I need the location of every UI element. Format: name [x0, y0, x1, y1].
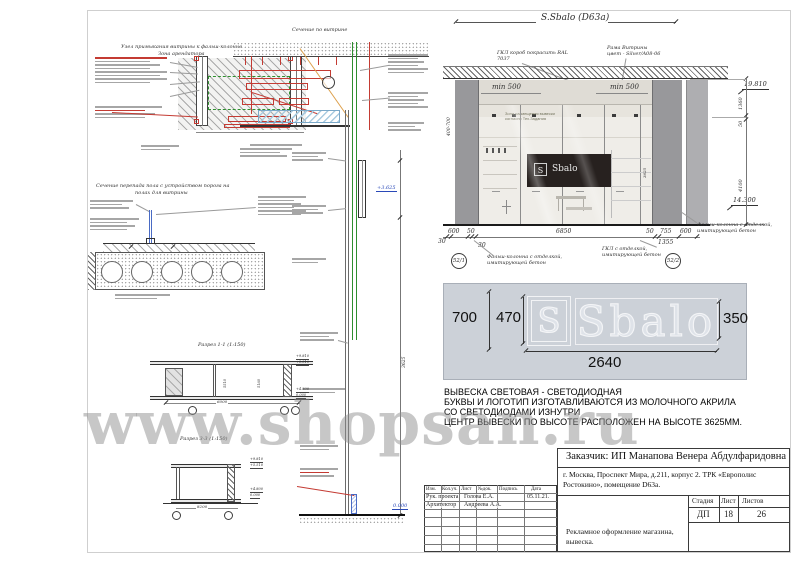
level-mark: +9.810 — [250, 458, 263, 463]
annotation-lines — [292, 258, 328, 265]
label-false-column-left-2: имитирующей бетон — [487, 261, 546, 266]
annotation-lines — [90, 200, 135, 211]
column-section — [227, 464, 235, 502]
ground-line — [163, 503, 258, 504]
titleblock-hline — [424, 535, 557, 536]
titleblock-vline — [524, 485, 525, 552]
label-false-column-right-2: имитирующей бетон — [697, 229, 756, 234]
level-mark: +5.510 — [296, 361, 309, 366]
column-line — [179, 467, 180, 499]
annotation-lines — [115, 294, 173, 301]
floor-line — [299, 514, 405, 516]
row1-role: Рук. проекта — [426, 494, 458, 500]
tiny-dim-mark — [532, 191, 540, 192]
anchor-red — [280, 57, 281, 65]
slab-void — [191, 261, 213, 283]
dim-1360: 1360 — [739, 97, 744, 110]
purpose-line-1: Рекламное оформление магазина, — [566, 528, 674, 536]
slab-void — [161, 261, 183, 283]
purpose-line-2: вывеска. — [566, 538, 594, 546]
dim-470: 470 — [496, 310, 521, 325]
note-gkl-2: 7037 — [497, 57, 510, 62]
annotation-lines — [95, 57, 171, 85]
note-frame-2: цвет - Silver/A08-06 — [607, 52, 660, 57]
title-dim-line — [456, 22, 536, 23]
sign-height-dim: 3625 — [643, 168, 647, 178]
address-line-1: г. Москва, Проспект Мира, д.211, корпус … — [563, 471, 756, 479]
dim-1355: 1355 — [658, 240, 673, 246]
stage-header: Стадия — [692, 498, 713, 505]
row1-name: Голова Е.А. — [464, 494, 494, 500]
col-ndok: №док. — [478, 487, 492, 492]
anchor-symbol — [194, 119, 199, 124]
sheet-header: Лист — [721, 498, 736, 505]
annotation-lines — [303, 388, 347, 395]
logo-s-letter: S — [537, 301, 560, 341]
tiny-dim-mark — [576, 191, 584, 192]
callout-52-2: 52/2 — [665, 253, 681, 269]
dim-600-right: 600 — [680, 229, 691, 235]
titleblock-hline — [424, 544, 557, 545]
dim-line-470 — [523, 297, 524, 344]
label-gkl-beton-2: имитирующей бетон — [602, 253, 661, 258]
glass-reflection — [479, 105, 652, 225]
dim-chain-bottom — [443, 237, 700, 238]
steel-frame — [242, 98, 274, 105]
dim-chain — [400, 150, 401, 516]
elevation-title: S.Sbalo (D63a) — [541, 14, 609, 23]
min-dim-left: min 500 — [492, 84, 521, 91]
slab-void — [221, 261, 243, 283]
titleblock-vline — [459, 485, 460, 552]
tiny-dim-mark — [616, 191, 624, 192]
tiny-dim-mark — [492, 191, 500, 192]
annotation-lines — [292, 152, 328, 163]
detail-marker-circle — [322, 76, 335, 89]
titleblock-vline — [688, 495, 689, 552]
col-list: Лист — [461, 487, 471, 492]
floor-detail-subtitle: полах для витрины — [135, 191, 188, 196]
min-dim-line — [596, 93, 648, 94]
false-column-left — [455, 80, 479, 225]
floor-hatch — [299, 517, 405, 525]
glass-line — [348, 110, 349, 514]
slab-void — [101, 261, 123, 283]
titleblock-hline — [424, 526, 557, 527]
dim-4100: 4100 — [739, 179, 744, 192]
dim-line-2640 — [526, 351, 717, 352]
titleblock-hline — [424, 517, 557, 518]
mullion — [215, 364, 216, 397]
steel-frame — [279, 98, 309, 105]
floor-level: 0.000 — [392, 504, 408, 510]
min-dim-line — [481, 93, 541, 94]
dim-600-left: 600 — [448, 229, 459, 235]
dim-vertical: 5160 — [258, 379, 262, 388]
dim-chain-right — [746, 79, 747, 226]
column-line — [176, 467, 177, 499]
annotation-lines — [300, 332, 340, 343]
sign-profile-line — [362, 160, 363, 218]
row2-role: Архитектор — [426, 502, 456, 508]
anchor-red — [336, 57, 337, 65]
floor-line — [443, 224, 710, 226]
titleblock-line — [557, 467, 790, 468]
level-mark: 0.000 — [296, 394, 306, 399]
grid-marker — [224, 511, 233, 520]
mullion — [213, 364, 214, 397]
row1-date: 05.11.21. — [527, 494, 549, 500]
grid-marker — [291, 406, 300, 415]
col-izm: Изм. — [426, 487, 436, 492]
grid-marker — [280, 406, 289, 415]
dim-width: 8200 — [196, 505, 208, 509]
ext-line — [712, 117, 746, 118]
dim-line-700 — [489, 292, 490, 350]
level-mark: +4.800 — [296, 388, 309, 393]
column-section — [283, 364, 292, 397]
titleblock-line — [688, 507, 790, 508]
ext-line — [690, 79, 746, 80]
stud-line-green — [356, 42, 357, 340]
dim-30-a: 30 — [438, 239, 446, 245]
col-podpis: Подпись — [499, 487, 517, 492]
glass-line — [345, 110, 346, 514]
column-section — [165, 368, 183, 396]
sign-center-level: +3.625 — [376, 186, 397, 192]
min-dim-right: min 500 — [610, 84, 639, 91]
annotation-lines — [388, 92, 430, 110]
dim-line-350 — [719, 302, 720, 339]
annotation-lines — [388, 54, 430, 75]
row2-name: Андреева А.А. — [464, 502, 502, 508]
screed-hatch — [103, 244, 255, 252]
dim-width: 6000 — [216, 400, 228, 404]
customer: Заказчик: ИП Манапова Венера Абдулфаридо… — [566, 452, 786, 463]
dim-700: 700 — [452, 310, 477, 325]
title-dim-line — [608, 22, 676, 23]
dim-line — [196, 132, 304, 133]
callout-52-1: 52/1 — [451, 253, 467, 269]
logo-text-box: Sbalo — [575, 298, 718, 345]
ceiling-slab-hatch — [443, 66, 728, 79]
sheet-value: 18 — [724, 510, 733, 519]
grid-marker — [172, 511, 181, 520]
dim-755: 755 — [660, 229, 671, 235]
sheets-value: 26 — [757, 510, 766, 519]
logo-text: Sbalo — [577, 297, 716, 346]
level-mark: 0.000 — [250, 494, 260, 499]
col-data: Дата — [531, 487, 541, 492]
titleblock-line — [557, 495, 790, 496]
section-title: Сечение по витрине — [292, 28, 347, 33]
anchor-red — [300, 57, 301, 65]
titleblock-vline — [497, 485, 498, 552]
range-dim: 400-700 — [448, 117, 453, 136]
desc-line-2: БУКВЫ И ЛОГОТИП ИЗГОТАВЛИВАЮТСЯ ИЗ МОЛОЧ… — [444, 398, 736, 407]
titleblock-vline — [719, 495, 720, 522]
floor-edge-line — [240, 125, 350, 127]
grid-marker — [188, 406, 197, 415]
node-detail-title: Узел примыкания витрины к фальш-колонне — [121, 45, 242, 50]
dim-line — [165, 403, 300, 404]
anchor-red — [318, 57, 319, 65]
slab-end-hatch — [88, 252, 96, 290]
dim-50-left: 50 — [467, 229, 475, 235]
floor-detail-title: Сечение перепада пола с устройством поро… — [96, 184, 229, 189]
door-frame-blue — [351, 494, 357, 514]
level-mark: +4.800 — [250, 488, 263, 493]
col-koluch: Кол.уч. — [442, 487, 458, 492]
desc-line-3: СО СВЕТОДИОДАМИ ИЗНУТРИ — [444, 408, 580, 417]
stud-line-green — [352, 42, 353, 340]
section-1-1-title: Разрез 1-1 (1:150) — [198, 343, 246, 348]
annotation-lines — [141, 145, 181, 152]
level-mark: +5.510 — [250, 464, 263, 469]
drawing-sheet: Узел примыкания витрины к фальш-колонне … — [0, 0, 794, 561]
slab-void — [131, 261, 153, 283]
titleblock-vline — [738, 495, 739, 522]
dim-350: 350 — [723, 311, 748, 326]
logo-s-frame-inner: S — [531, 300, 567, 342]
anchor-red — [262, 57, 263, 65]
steel-frame — [246, 83, 308, 90]
level-bottom: 14.300 — [731, 196, 758, 206]
dim-3625: 3625 — [403, 357, 408, 368]
level-mark: +9.810 — [296, 355, 309, 360]
address-line-2: Ростокино», помещение D63a. — [563, 481, 660, 489]
wall-band — [686, 80, 708, 225]
column-line — [202, 56, 203, 126]
dim-50-right: 50 — [646, 229, 654, 235]
desc-line-1: ВЫВЕСКА СВЕТОВАЯ - СВЕТОДИОДНАЯ — [444, 388, 622, 397]
red-axis-line — [369, 42, 370, 130]
sheets-header: Листов — [742, 498, 763, 505]
beam-hatched — [258, 110, 340, 123]
annotation-lines — [300, 468, 340, 479]
false-column-right — [652, 80, 682, 225]
dim-6850: 6850 — [556, 229, 571, 235]
section-3-3-title: Разрез 3-3 (1:150) — [180, 437, 228, 442]
annotation-lines — [240, 148, 295, 159]
anchor-red — [245, 57, 246, 65]
desc-line-4: ЦЕНТР ВЫВЕСКИ ПО ВЫСОТЕ РАСПОЛОЖЕН НА ВЫ… — [444, 418, 742, 427]
dim-50: 50 — [739, 121, 744, 127]
titleblock-line — [688, 522, 790, 523]
annotation-lines — [90, 218, 142, 232]
annotation-lines — [258, 196, 308, 217]
dim-2640: 2640 — [588, 355, 621, 370]
stage-value: ДП — [697, 510, 710, 519]
anchor-symbol — [194, 56, 199, 61]
annotation-lines — [388, 122, 426, 133]
steel-post — [251, 56, 252, 114]
dim-vertical: 5510 — [224, 379, 228, 388]
titleblock-hline — [424, 509, 557, 510]
annotation-lines — [300, 445, 340, 452]
